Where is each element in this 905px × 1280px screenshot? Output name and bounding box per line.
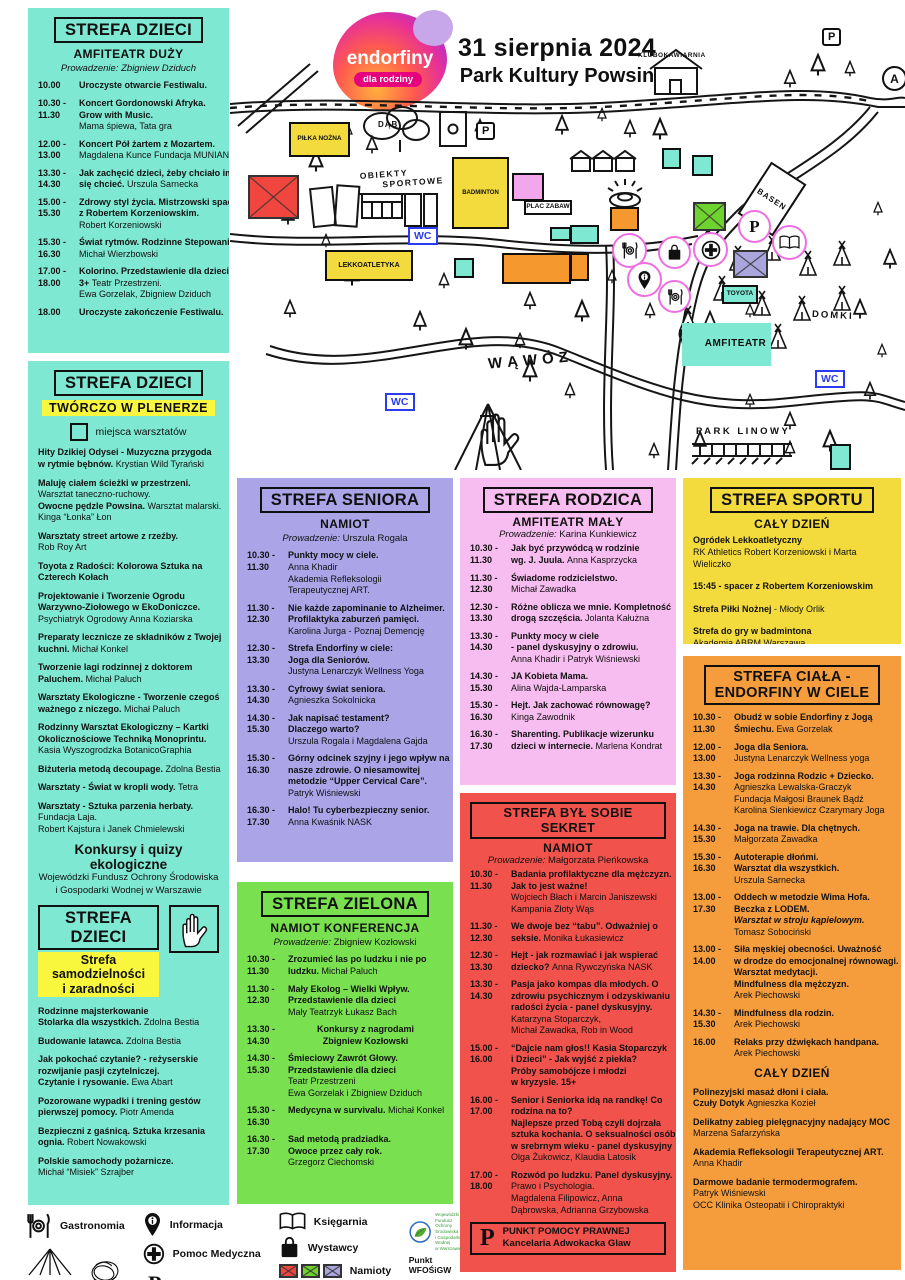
map-wystawcy-icon [658,236,691,269]
tents-icons [279,1264,342,1278]
bag-icon [279,1236,300,1259]
zone-highlight: Strefa samodzielnościi zaradności [38,952,159,997]
map-informacja-icon [627,262,662,297]
zone-host: Prowadzenie: Zbigniew Dziduch [38,63,219,74]
event-row: 16.00Relaks przy dźwiękach handpana.Arek… [693,1037,891,1060]
wfosigw-leaf-icon [409,1217,431,1247]
map-pomoc-prawna-icon: P [738,210,771,243]
cutlery-icon [24,1212,52,1240]
sekret-events: 10.30 -11.30Badania profilaktyczne dla m… [470,869,666,1216]
zone-title: STREFA BYŁ SOBIE SEKRET [470,802,666,839]
map-tent-purple-icon [733,250,768,278]
event-row: 16.30 -17.30Sad metodą pradziadka.Owoce … [247,1134,443,1169]
zone-title: STREFA DZIECI [38,905,159,950]
jurta-cafe-logo: JURTA CAFE [24,1247,76,1280]
map-tent-green-icon [693,202,726,231]
wfosigw-caption: Punkt WFOŚiGW [409,1255,467,1275]
zone-subtitle: CAŁY DZIEŃ [693,517,891,531]
event-row: 13.30 -14.30Konkursy z nagrodamiZbigniew… [247,1024,443,1047]
wfosigw-tiny-text: Wojewódzki FunduszOchrony Środowiska i G… [435,1212,467,1251]
event-row: 14.30 -15.30Jak napisać testament?Dlacze… [247,713,443,748]
event-row: 14.30 -15.30JA Kobieta Mama.Alina Wajda-… [470,671,666,694]
park-map: PIŁKA NOŻNA DĄB OBIEKTYSPORTOWE BADMINTO… [230,8,905,470]
zone-host: Prowadzenie: Urszula Rogala [247,533,443,544]
event-row: 11.30 -12.30Mały Ekolog – Wielki Wpływ.P… [247,984,443,1019]
event-row: 15.30 -16.30Medycyna w survivalu. Michał… [247,1105,443,1128]
legend-wfosigw: Wojewódzki FunduszOchrony Środowiska i G… [409,1212,467,1280]
event-row: 15.30 -16.30Autoterapie dłońmi.Warsztat … [693,852,891,887]
event-row: 13.00 -17.30Oddech w metodzie Wima Hofa.… [693,892,891,938]
map-ksiegarnia-icon [772,225,807,260]
legal-help-point: P PUNKT POMOCY PRAWNEJKancelaria Adwokac… [470,1222,666,1255]
event-row: 10.30 -11.30Zrozumieć las po ludzku i ni… [247,954,443,977]
zone-subtitle: AMFITEATR DUŻY [38,47,219,61]
all-day-subheader: CAŁY DZIEŃ [693,1066,891,1080]
event-row: 11.30 -12.30Nie każde zapominanie to Alz… [247,603,443,638]
festival-poster: endorfiny dla rodziny 31 sierpnia 2024 P… [0,0,905,1280]
rodzica-events: 10.30 -11.30Jak być przywódcą w rodzinie… [470,543,666,752]
map-box-pink [512,173,544,201]
map-sign-wc-2: WC [815,370,845,388]
zone-dzieci-samodzielnosc-header: STREFA DZIECI Strefa samodzielnościi zar… [38,905,219,998]
zone-subtitle: NAMIOT KONFERENCJA [247,921,443,935]
event-row: 10.30 -11.30Koncert Gordonowski Afryka.G… [38,98,219,133]
hand-icon [169,905,219,953]
book-icon [279,1212,306,1231]
list-item: Polinezyjski masaż dłoni i ciała.Czuły D… [693,1087,891,1110]
zone-title: STREFA RODZICA [483,487,653,513]
list-item: Polskie samochody pożarnicze.Michał “Mis… [38,1156,219,1179]
map-sign-wc-1: WC [408,227,438,245]
event-row: 14.30 -15.30Mindfulness dla rodzin.Arek … [693,1008,891,1031]
map-sign-parking-1: P [476,122,495,140]
workshop-places-row: miejsca warsztatów [38,423,219,441]
legend-wystawcy: Wystawcy [279,1236,391,1259]
event-row: 14.30 -15.30Joga na trawie. Dla chętnych… [693,823,891,846]
event-row: 12.30 -13.30Różne oblicza we mnie. Kompl… [470,602,666,625]
event-row: 16.30 -17.30Halo! Tu cyberbezpieczny sen… [247,805,443,828]
checkbox-icon [70,423,88,441]
event-row: 12.00 -13.00Koncert Pół żartem z Mozarte… [38,139,219,162]
map-area-badminton: BADMINTON [452,157,509,229]
list-item: Bezpieczni z gaśnicą. Sztuka krzesaniaog… [38,1126,219,1149]
event-row: 12.30 -13.30Hejt - jak rozmawiać i jak w… [470,950,666,973]
info-pin-icon [143,1212,162,1237]
event-row: 11.30 -12.30We dwoje bez “tabu”. Odważni… [470,921,666,944]
map-pomoc-medyczna-icon [693,232,728,267]
zone-sekret: STREFA BYŁ SOBIE SEKRET NAMIOT Prowadzen… [460,793,676,1272]
map-area-lekkoatletyka: LEKKOATLETYKA [325,250,413,281]
map-box-orange-2 [610,207,639,231]
event-row: 10.30 -11.30Badania profilaktyczne dla m… [470,869,666,915]
legend-ksiegarnia: Księgarnia [279,1212,391,1231]
zone-zielona: STREFA ZIELONA NAMIOT KONFERENCJA Prowad… [237,882,453,1204]
map-box-teal-5 [692,155,713,176]
zone-title: STREFA SENIORA [260,487,430,513]
legal-p-icon: P [143,1271,167,1280]
map-area-pilka-nozna: PIŁKA NOŻNA [289,122,350,157]
map-box-orange-1 [502,253,571,284]
event-row: 18.00Uroczyste zakończenie Festiwalu. [38,307,219,319]
event-row: 13.30 -14.30Cyfrowy świat seniora.Agnies… [247,684,443,707]
list-item: Budowanie latawca. Zdolna Bestia [38,1036,219,1048]
zone-title: STREFA SPORTU [710,487,874,513]
legend: Gastronomia JURTA CAFE [24,1212,454,1280]
event-row: 15.00 -15.30Zdrowy styl życia. Mistrzows… [38,197,219,232]
medical-cross-icon [143,1242,165,1266]
event-row: 13.00 -14.00Siła męskiej obecności. Uważ… [693,944,891,1002]
zone-sportu: STREFA SPORTU CAŁY DZIEŃ Ogródek Lekkoat… [683,478,901,644]
zone-title: STREFA CIAŁA -ENDORFINY W CIELE [704,665,881,705]
event-row: 16.00 -17.00Senior i Seniorka idą na ran… [470,1095,666,1164]
event-row: 13.30 -14.30Jak zachęcić dzieci, żeby ch… [38,168,219,191]
list-item: Rodzinny Warsztat Ekologiczny – KartkiOk… [38,722,219,757]
event-row: 14.30 -15.30Śmieciowy Zawrót Głowy.Przed… [247,1053,443,1099]
list-item: Tworzenie lagi rodzinnej z doktoremPaluc… [38,662,219,685]
zone-host: Prowadzenie: Małgorzata Pieńkowska [470,855,666,866]
event-row: 17.00 -18.00Rozwód po ludzku. Panel dysk… [470,1170,666,1216]
event-row: 13.30 -14.30Punkty mocy w ciele- panel d… [470,631,666,666]
list-item: Warsztaty - Sztuka parzenia herbaty.Fund… [38,801,219,836]
zone-rodzica: STREFA RODZICA AMFITEATR MAŁY Prowadzeni… [460,478,676,785]
list-item: Ogródek LekkoatletycznyRK Athletics Robe… [693,535,891,570]
map-label-klubokawiarnia: KLUBOKAWIARNIA [638,52,706,59]
map-label-plac-zabaw: PLAC ZABAW [524,200,572,215]
list-item: Strefa do gry w badmintonaAkademia ABRM … [693,626,891,644]
legend-pomoc-medyczna: Pomoc Medyczna [143,1242,261,1266]
list-item: Hity Dzikiej Odysei - Muzyczna przygodaw… [38,447,219,470]
map-box-teal-3 [570,225,599,244]
legend-gastronomia: Gastronomia [24,1212,125,1240]
list-item: Delikatny zabieg pielęgnacyjny nadający … [693,1117,891,1140]
map-box-teal-2 [454,258,474,278]
legend-namioty: Namioty [279,1264,391,1278]
map-label-park-linowy: PARK LINOWY [696,426,790,437]
sportu-entries: Ogródek LekkoatletycznyRK Athletics Robe… [693,535,891,644]
event-row: 10.30 -11.30Jak być przywódcą w rodzinie… [470,543,666,566]
eco-contests: Konkursy i quizy ekologiczne Wojewódzki … [38,842,219,897]
map-area-toyota: TOYOTA [722,285,758,304]
zone-highlight: TWÓRCZO W PLENERZE [42,400,215,416]
list-item: Pozorowane wypadki i trening gestówpierw… [38,1096,219,1119]
map-gastronomia-2-icon [658,280,691,313]
map-sign-parking-2: P [822,28,841,46]
map-area-amfiteatr: AMFITEATR [682,323,771,366]
event-row: 15.00 -16.00“Dajcie nam głos!! Kasia Sto… [470,1043,666,1089]
list-item: Maluję ciałem ścieżki w przestrzeni.Wars… [38,478,219,524]
zone-host: Prowadzenie: Zbigniew Kozłowski [247,937,443,948]
legend-pomoc-prawna: P Pomoc Prawna [143,1271,261,1280]
map-label-dab: DĄB [378,120,398,129]
list-item: Jak pokochać czytanie? - reżyserskierozw… [38,1054,219,1089]
list-item: Warsztaty - Świat w kropli wody. Tetra [38,782,219,794]
list-item: Toyota z Radości: Kolorowa Sztuka naCzte… [38,561,219,584]
event-row: 12.30 -13.30Strefa Endorfiny w ciele:Jog… [247,643,443,678]
list-item: Rodzinne majsterkowanieStolarka dla wszy… [38,1006,219,1029]
list-item: Biżuteria metodą decoupage. Zdolna Besti… [38,764,219,776]
zone-seniora: STREFA SENIORA NAMIOT Prowadzenie: Urszu… [237,478,453,862]
zone-title: STREFA DZIECI [54,370,203,396]
list-item: Warsztaty Ekologiczne - Tworzenie czegoś… [38,692,219,715]
event-row: 15.30 -16.30Hejt. Jak zachować równowagę… [470,700,666,723]
zone-ciala: STREFA CIAŁA -ENDORFINY W CIELE 10.30 -1… [683,656,901,1270]
list-item: Warsztaty street artowe z rzeźby.Rob Roy… [38,531,219,554]
dzieci1-events: 10.00Uroczyste otwarcie Festiwalu.10.30 … [38,80,219,318]
event-row: 16.30 -17.30Sharenting. Publikacje wizer… [470,729,666,752]
map-box-teal-4 [662,148,681,169]
list-item: Akademia Refleksologii Terapeutycznej AR… [693,1147,891,1170]
zone-dzieci-plener: STREFA DZIECI TWÓRCZO W PLENERZE miejsca… [28,361,229,1205]
list-item: 15:45 - spacer z Robertem Korzeniowskim [693,581,891,593]
seniora-events: 10.30 -11.30Punkty mocy w ciele.Anna Kha… [247,550,443,828]
event-row: 17.00 -18.00Kolorino. Przedstawienie dla… [38,266,219,301]
zielona-events: 10.30 -11.30Zrozumieć las po ludzku i ni… [247,954,443,1168]
zone-title: STREFA ZIELONA [261,891,429,917]
list-item: Darmowe badanie termodermografem.Patryk … [693,1177,891,1212]
event-row: 15.30 -16.30Świat rytmów. Rodzinne Stepo… [38,237,219,260]
event-row: 10.30 -11.30Obudź w sobie Endorfiny z Jo… [693,712,891,735]
event-row: 10.00Uroczyste otwarcie Festiwalu. [38,80,219,92]
partner-scribble-logo [86,1257,124,1280]
dzieci3-entries: Rodzinne majsterkowanieStolarka dla wszy… [38,1006,219,1179]
ciala-events: 10.30 -11.30Obudź w sobie Endorfiny z Jo… [693,712,891,1059]
zone-dzieci-amfiteatr: STREFA DZIECI AMFITEATR DUŻY Prowadzenie… [28,8,229,353]
dzieci2-entries: Hity Dzikiej Odysei - Muzyczna przygodaw… [38,447,219,835]
map-box-teal-6 [830,444,851,470]
zone-title: STREFA DZIECI [54,17,203,43]
event-row: 11.30 -12.30Świadome rodzicielstwo.Micha… [470,573,666,596]
list-item: Preparaty lecznicze ze składników z Twoj… [38,632,219,655]
event-row: 13.30 -14.30Pasja jako kompas dla młodyc… [470,979,666,1037]
pomoc-prawna-icon: P [480,1226,495,1250]
zone-subtitle: AMFITEATR MAŁY [470,515,666,529]
event-row: 10.30 -11.30Punkty mocy w ciele.Anna Kha… [247,550,443,596]
map-tent-red-icon [248,175,299,219]
map-box-orange-3 [570,253,589,281]
zone-subtitle: NAMIOT [470,841,666,855]
event-row: 13.30 -14.30Joga rodzinna Rodzic + Dziec… [693,771,891,817]
zone-subtitle: NAMIOT [247,517,443,531]
map-box-teal-1 [550,227,571,241]
map-label-domki: DOMKI [812,309,854,322]
event-row: 15.30 -16.30Górny odcinek szyjny i jego … [247,753,443,799]
checkbox-label: miejsca warsztatów [95,426,186,438]
event-row: 12.00 -13.00Joga dla Seniora.Justyna Len… [693,742,891,765]
map-sign-wc-3: WC [385,393,415,411]
ciala-allday-entries: Polinezyjski masaż dłoni i ciała.Czuły D… [693,1087,891,1212]
list-item: Strefa Piłki Nożnej - Młody Orlik [693,604,891,616]
legend-informacja: Informacja [143,1212,261,1237]
zone-host: Prowadzenie: Karina Kunkiewicz [470,529,666,540]
list-item: Projektowanie i Tworzenie OgroduWarzywno… [38,591,219,626]
map-sign-route-a: A [882,66,905,91]
